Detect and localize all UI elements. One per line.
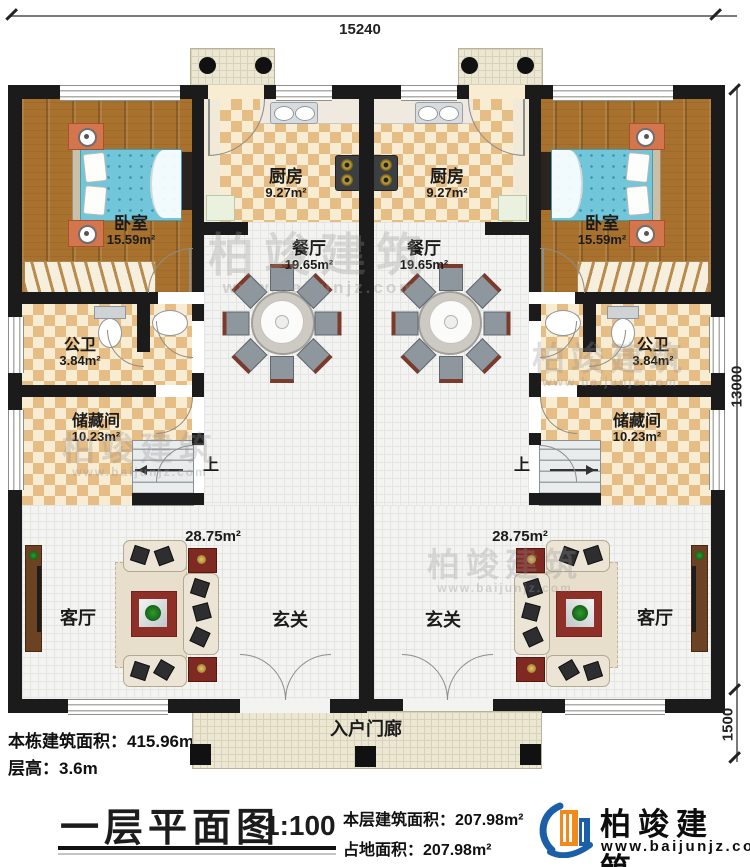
floor-area-label: 本层建筑面积： (343, 812, 455, 829)
building-area-note: 本栋建筑面积：415.96m² (8, 727, 200, 752)
ground-area-label: 占地面积： (343, 842, 423, 859)
porch-column (355, 746, 376, 767)
dining-table-hub (444, 315, 458, 329)
tv-cabinet (25, 545, 42, 652)
dining-chair (223, 312, 250, 336)
brand-logo-icon (538, 798, 596, 858)
porch-column (520, 744, 541, 765)
end-table (516, 548, 545, 573)
entry-porch-label: 入户门廊 (303, 720, 429, 740)
wall-center (366, 85, 374, 713)
window (8, 410, 24, 490)
cushion (190, 578, 210, 598)
window (709, 410, 725, 490)
wall (711, 85, 725, 713)
floor-height-note: 层高：3.6m (8, 754, 98, 779)
wardrobe (577, 261, 709, 294)
wall (192, 373, 204, 397)
wardrobe (24, 261, 156, 294)
wall (8, 85, 22, 713)
foyer-label: 玄关 (395, 611, 491, 631)
nightstand (629, 123, 665, 150)
cushion (130, 661, 150, 681)
scale-value: 1:100 (264, 810, 336, 842)
dimension-right-value: 13000 (729, 357, 746, 417)
living-area: 28.75m² (165, 529, 261, 546)
plant-icon (29, 551, 38, 560)
dimension-tick (728, 683, 740, 695)
door-leaf (208, 99, 210, 155)
burner-icon (341, 174, 353, 186)
stove (372, 155, 398, 191)
bathroom-label: 公卫 (32, 337, 128, 355)
door-opening (208, 85, 264, 99)
foyer-label: 玄关 (242, 611, 338, 631)
unit-right: 卧室 15.59m² 厨房 9.27m² 餐厅 19.65m² 公卫 3.84m… (366, 85, 725, 713)
dining-area: 19.65m² (263, 258, 355, 272)
wall (204, 222, 248, 235)
sofa-loveseat (546, 655, 610, 687)
dining-chair (392, 312, 419, 336)
tv-cabinet (691, 545, 708, 652)
lamp-icon (78, 128, 97, 147)
stairs-arrowhead-icon (586, 465, 600, 475)
bedroom-area: 15.59m² (83, 233, 179, 247)
cushion (558, 659, 580, 681)
page-title: 一层平面图 (60, 797, 280, 853)
living-label: 客厅 (30, 609, 126, 629)
sofa-loveseat (123, 655, 187, 687)
cushion (583, 545, 603, 565)
door-opening (469, 85, 525, 99)
window (553, 85, 673, 101)
porch-column (199, 57, 216, 74)
plant-icon (145, 605, 161, 621)
dimension-top-value: 15240 (300, 21, 420, 38)
kitchen-area: 9.27m² (240, 186, 332, 200)
kitchen-sink (270, 102, 318, 124)
wall (192, 99, 204, 292)
burner-icon (380, 159, 392, 171)
window (8, 317, 24, 373)
cushion (153, 659, 175, 681)
dimension-tick (728, 83, 740, 95)
coffee-table (131, 591, 177, 637)
pillow (626, 152, 651, 183)
fridge (498, 195, 527, 221)
sink-basin (418, 106, 438, 121)
wall (132, 493, 204, 505)
burner-icon (341, 159, 353, 171)
door-leaf (189, 248, 191, 292)
sink-basin (274, 106, 294, 121)
stairs-up-label: 上 (187, 457, 235, 475)
nightstand (68, 123, 104, 150)
storage-area: 10.23m² (48, 430, 144, 444)
sofa-main (183, 573, 219, 655)
kitchen-sink (415, 102, 463, 124)
floor-plan: 卧室 15.59m² 厨房 9.27m² 餐厅 19.65m² 公卫 3.84m… (8, 85, 725, 713)
wall (22, 292, 158, 304)
floor-height-value: 3.6m (59, 759, 98, 778)
window (68, 699, 168, 715)
storage-area: 10.23m² (589, 430, 685, 444)
title-underline (58, 846, 336, 850)
cushion (130, 545, 150, 565)
brand-url: www.baijunjz.com (601, 838, 750, 855)
cushion (189, 626, 210, 647)
bathroom-area: 3.84m² (605, 354, 701, 368)
living-area: 28.75m² (472, 529, 568, 546)
bathroom-area: 3.84m² (32, 354, 128, 368)
building-area-label: 本栋建筑面积： (8, 732, 127, 751)
window (60, 85, 180, 101)
unit-left: 卧室 15.59m² 厨房 9.27m² 餐厅 19.65m² 公卫 3.84m… (8, 85, 367, 713)
porch-column (461, 57, 478, 74)
end-table (188, 657, 217, 682)
end-table (188, 548, 217, 573)
plant-icon (695, 551, 704, 560)
floor-height-label: 层高： (8, 759, 59, 778)
porch-column (190, 744, 211, 765)
door-leaf (523, 99, 525, 155)
dimension-porch-value: 1500 (720, 700, 737, 750)
bedroom-label: 卧室 (83, 215, 179, 234)
bed-blanket (150, 150, 181, 218)
dimension-tick (728, 751, 740, 763)
wall (192, 433, 204, 445)
porch-column (517, 57, 534, 74)
door-leaf (542, 248, 544, 292)
bedroom-label: 卧室 (554, 215, 650, 234)
dining-chair (439, 356, 463, 383)
brand-name: 柏竣建筑 (600, 799, 750, 867)
kitchen-label: 厨房 (240, 168, 332, 187)
wall (575, 292, 711, 304)
dining-label: 餐厅 (378, 240, 470, 259)
sofa-main (514, 573, 550, 655)
cushion (521, 602, 541, 622)
cushion (559, 546, 580, 567)
wall-center (359, 85, 367, 713)
pillow (626, 185, 650, 216)
bedroom-tv (540, 152, 551, 210)
wall (577, 385, 711, 397)
dining-chair (315, 312, 342, 336)
kitchen-label: 厨房 (401, 168, 493, 187)
cushion (523, 578, 543, 598)
floor-plan-canvas: 15240 13000 1500 入户门廊 (0, 0, 750, 867)
window (401, 85, 457, 101)
wall (529, 373, 541, 397)
window (709, 317, 725, 373)
storage-label: 储藏间 (48, 413, 144, 431)
stairs-up-label: 上 (498, 457, 546, 475)
lamp-icon (636, 128, 655, 147)
sink-basin (295, 106, 315, 121)
plant-icon (572, 605, 588, 621)
ground-area-value: 207.98m² (423, 842, 492, 859)
wall (485, 222, 529, 235)
wall (22, 385, 156, 397)
dining-chair (270, 356, 294, 383)
sink-basin (439, 106, 459, 121)
dining-label: 餐厅 (263, 240, 355, 259)
wall (529, 493, 601, 505)
wall (192, 304, 204, 321)
living-label: 客厅 (607, 609, 703, 629)
cushion (583, 661, 603, 681)
dining-chair (484, 312, 511, 336)
stove (335, 155, 361, 191)
porch-column (255, 57, 272, 74)
window (276, 85, 332, 101)
pillow (83, 152, 108, 183)
bed-blanket (552, 150, 583, 218)
cushion (192, 602, 212, 622)
cushion (154, 546, 175, 567)
floor-area-value: 207.98m² (455, 812, 524, 829)
wall (529, 433, 541, 445)
building-area-value: 415.96m² (127, 732, 200, 751)
wall (529, 304, 541, 321)
dimension-line-right (736, 88, 738, 762)
stairs-arrowhead-icon (133, 465, 147, 475)
bedroom-area: 15.59m² (554, 233, 650, 247)
dining-area: 19.65m² (378, 258, 470, 272)
burner-icon (380, 174, 392, 186)
kitchen-area: 9.27m² (401, 186, 493, 200)
pillow (83, 185, 107, 216)
entry-door-opening (240, 699, 330, 713)
end-table (516, 657, 545, 682)
dining-table-hub (275, 315, 289, 329)
fridge (206, 195, 235, 221)
dimension-line-top (10, 15, 737, 17)
floor-area-note: 本层建筑面积：207.98m² (343, 806, 524, 830)
ground-area-note: 占地面积：207.98m² (343, 836, 492, 860)
window (565, 699, 665, 715)
title-underline-thin (58, 853, 336, 855)
cushion (522, 626, 543, 647)
coffee-table (556, 591, 602, 637)
storage-label: 储藏间 (589, 413, 685, 431)
bathroom-label: 公卫 (605, 337, 701, 355)
